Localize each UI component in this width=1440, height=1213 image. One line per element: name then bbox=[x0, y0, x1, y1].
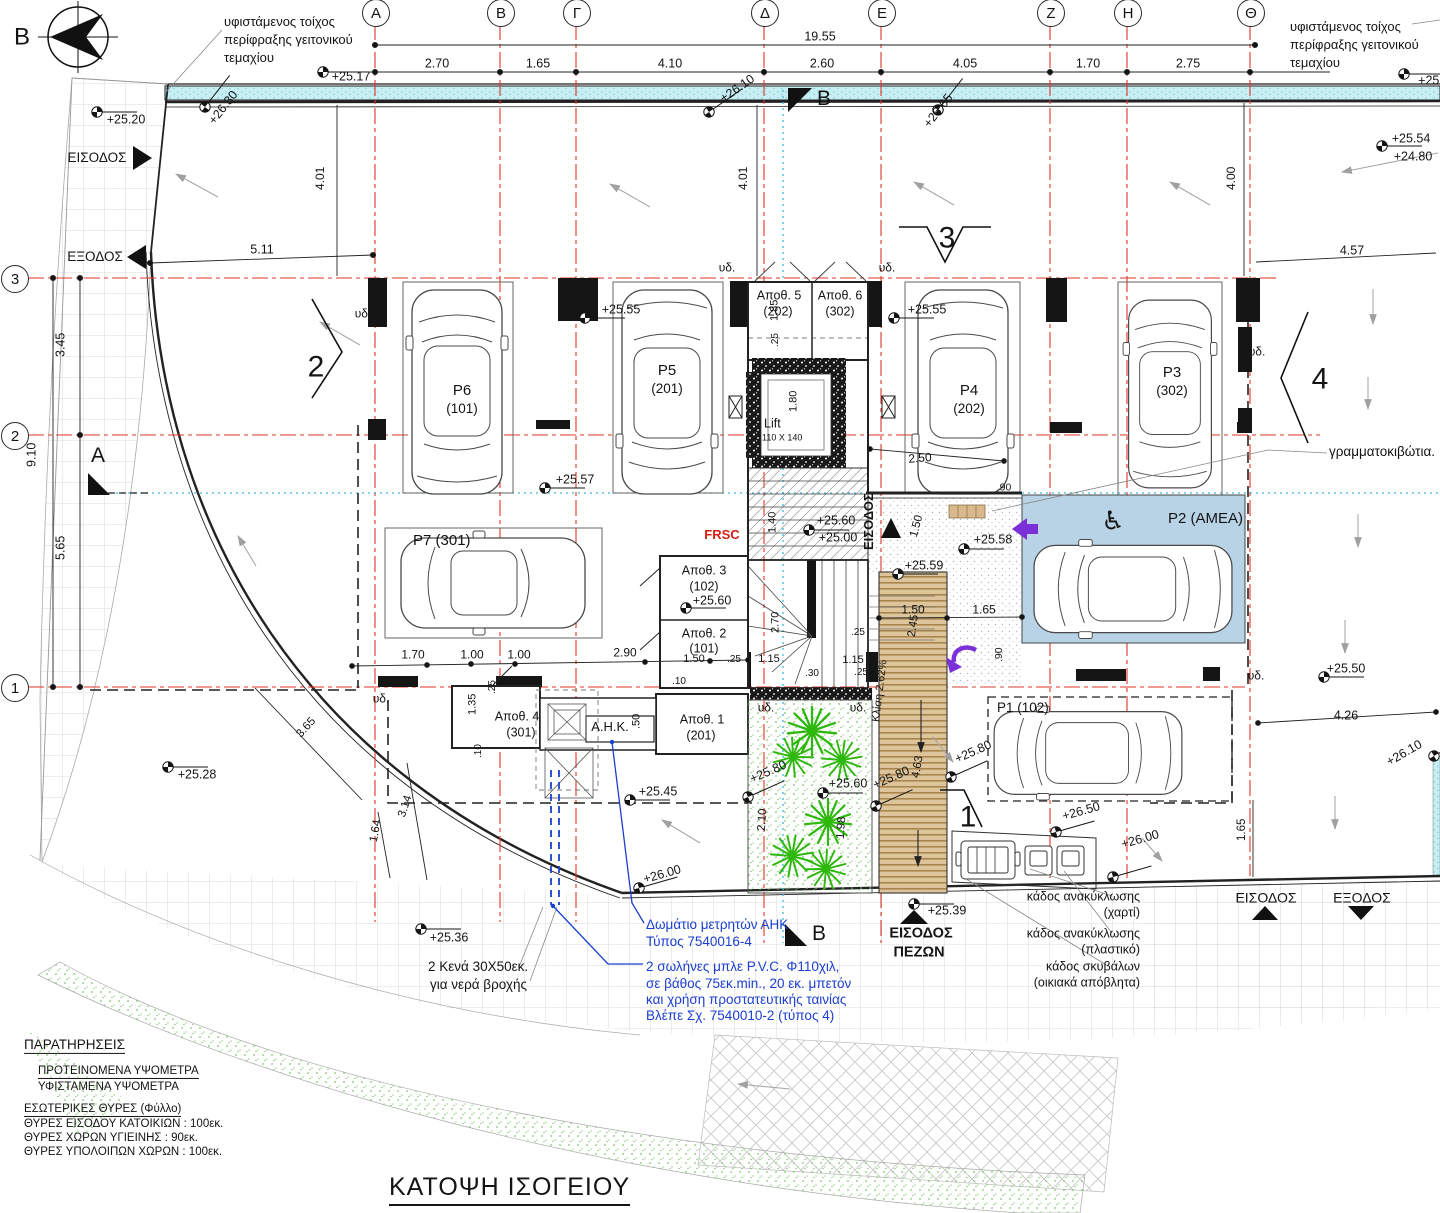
level-25-39: +25.39 bbox=[928, 904, 967, 917]
parking-p3-unit: (302) bbox=[1156, 384, 1188, 398]
storage-3-unit: (102) bbox=[689, 580, 718, 593]
dim-10-b: .10 bbox=[474, 744, 485, 758]
frsc-label: FRSC bbox=[704, 528, 739, 542]
section-b-top-label: B bbox=[817, 88, 831, 110]
dim-150-a: 1.50 bbox=[683, 654, 704, 666]
blue-note-pvc-1: 2 σωλήνες μπλε P.V.C. Φ110χιλ, bbox=[646, 960, 839, 974]
dim-135: 1.35 bbox=[468, 694, 480, 715]
level-25-17: +25.17 bbox=[332, 70, 371, 83]
bin-small-1 bbox=[1025, 846, 1052, 875]
floor-plan-page: { "title": {"text": "ΚΑΤΟΨΗ ΙΣΟΓΕΙΟΥ"}, … bbox=[0, 0, 1440, 1213]
storage-4-label: Αποθ. 4 bbox=[495, 710, 540, 723]
dim-gd: 4.10 bbox=[658, 57, 682, 70]
level-25-54: +25.54 bbox=[1392, 132, 1431, 145]
storage-6-label: Αποθ. 6 bbox=[818, 289, 863, 302]
lift-label: Lift bbox=[764, 417, 781, 430]
blue-note-pvc-2: σε βάθος 75εκ.min., 20 εκ. μπετόν bbox=[646, 977, 851, 991]
bin-waste-label-2: (οικιακά απόβλητα) bbox=[1034, 976, 1140, 989]
dim-100-b: 1.00 bbox=[507, 649, 530, 662]
dim-165-a: 1.65 bbox=[972, 604, 995, 617]
parking-p5-id: P5 bbox=[658, 363, 676, 379]
storage-6-unit: (302) bbox=[825, 305, 854, 318]
detail-mark-4-label: 4 bbox=[1312, 363, 1329, 395]
dim-401-b: 4.01 bbox=[737, 167, 750, 190]
ahk-label: Α.Η.Κ. bbox=[591, 720, 629, 734]
blue-note-pvc-4: Βλέπε Σχ. 7540010-2 (τύπος 4) bbox=[646, 1009, 834, 1023]
notes-doors-3: ΘΥΡΕΣ ΥΠΟΛΟΙΠΩΝ ΧΩΡΩΝ : 100εκ. bbox=[24, 1146, 222, 1158]
site-boundaries bbox=[40, 78, 1440, 898]
storage-1-label: Αποθ. 1 bbox=[680, 713, 725, 726]
level-25-55-b: +25.55 bbox=[908, 303, 947, 316]
dim-115-b: 1.15 bbox=[842, 655, 863, 667]
wall-note-right-2: περίφραξης γειτονικού bbox=[1290, 38, 1419, 52]
rain-note-2: για νερά βροχής bbox=[430, 978, 527, 992]
grid-row-1: 1 bbox=[1, 674, 29, 702]
parking-p3-id: P3 bbox=[1163, 365, 1181, 381]
yd-7: υδ. bbox=[850, 702, 867, 715]
dim-bg: 1.65 bbox=[526, 57, 550, 70]
storage-5-unit: (202) bbox=[763, 305, 792, 318]
yd-5: υδ. bbox=[373, 693, 390, 706]
wheelchair-icon: ♿ bbox=[1101, 507, 1124, 534]
blue-note-meter-1: Δωμάτιο μετρητών ΑΗΚ bbox=[646, 918, 788, 932]
dim-426: 4.26 bbox=[1334, 709, 1358, 722]
bin-paper-label-2: (χαρτί) bbox=[1104, 906, 1140, 919]
dim-210: 2.10 bbox=[756, 808, 770, 831]
dim-25-c: .25 bbox=[854, 668, 868, 679]
dim-401-a: 4.01 bbox=[314, 167, 327, 190]
blue-note-pvc-3: και χρήση προστατευτικής ταινίας bbox=[646, 993, 846, 1007]
storage-3-label: Αποθ. 3 bbox=[682, 564, 727, 577]
grid-row-3: 3 bbox=[1, 265, 29, 293]
dim-overall: 19.55 bbox=[804, 30, 835, 43]
bin-waste-label-1: κάδος σκυβάλων bbox=[1046, 960, 1140, 973]
parking-p7-label: P7 (301) bbox=[413, 533, 471, 549]
level-25-1-edge: +25.1 bbox=[1418, 74, 1440, 87]
dim-565: 5.65 bbox=[54, 536, 67, 560]
blue-note-meter-2: Τύπος 7540016-4 bbox=[646, 935, 752, 949]
dim-115-a: 1.15 bbox=[758, 654, 779, 666]
dim-25-a: .25 bbox=[771, 333, 782, 347]
level-25-58: +25.58 bbox=[974, 533, 1013, 546]
dim-270-st: 2.70 bbox=[771, 612, 783, 633]
level-24-80: +24.80 bbox=[1394, 150, 1433, 163]
section-a-label: A bbox=[91, 445, 105, 467]
grid-column-Γ: Γ bbox=[563, 0, 591, 27]
dim-25-d: .25 bbox=[727, 655, 741, 666]
north-label: B bbox=[14, 24, 30, 49]
dim-zh: 1.70 bbox=[1076, 57, 1100, 70]
lift-shaft bbox=[761, 374, 831, 456]
planting-bed bbox=[748, 700, 872, 895]
dim-165-b: 1.65 bbox=[1236, 819, 1248, 841]
drawing-title: ΚΑΤΟΨΗ ΙΣΟΓΕΙΟΥ bbox=[389, 1173, 630, 1206]
dim-ez: 4.05 bbox=[953, 57, 977, 70]
dim-250: 2.50 bbox=[908, 451, 932, 465]
waste-bins bbox=[952, 831, 1096, 889]
grid-row-2: 2 bbox=[1, 422, 29, 450]
dim-511: 5.11 bbox=[250, 243, 273, 256]
dim-180: 1.80 bbox=[789, 391, 801, 412]
bin-plastic-label-1: κάδος ανακύκλωσης bbox=[1027, 927, 1140, 940]
entrance-left-label: ΕΙΣΟΔΟΣ bbox=[68, 151, 127, 165]
level-25-50: +25.50 bbox=[1327, 662, 1366, 675]
dim-90-a: .90 bbox=[997, 482, 1012, 493]
level-26-10-br-icon bbox=[1427, 731, 1440, 763]
level-25-59: +25.59 bbox=[905, 559, 944, 572]
grid-column-Α: Α bbox=[362, 0, 390, 27]
exit-bottom-right-label: ΕΞΟΔΟΣ bbox=[1333, 891, 1391, 906]
entrance-bottom-right-label: ΕΙΣΟΔΟΣ bbox=[1235, 891, 1296, 906]
grid-column-Η: Η bbox=[1114, 0, 1142, 27]
pedestrian-entrance-label-1: ΕΙΣΟΔΟΣ bbox=[889, 926, 952, 941]
detail-mark-1-label: 1 bbox=[960, 801, 977, 833]
dim-290: 2.90 bbox=[613, 647, 636, 660]
storage-2-unit: (101) bbox=[689, 642, 718, 655]
dim-50: .50 bbox=[632, 714, 644, 729]
level-25-28: +25.28 bbox=[178, 768, 217, 781]
dim-457: 4.57 bbox=[1340, 244, 1364, 257]
wall-note-left-3: τεμαχίου bbox=[224, 51, 274, 65]
parking-p2-label: P2 (ΑΜΕΑ) bbox=[1168, 511, 1243, 527]
dim-345: 3.45 bbox=[54, 333, 67, 357]
level-25-60-storage: +25.60 bbox=[693, 594, 732, 607]
lift-size-label: 110 X 140 bbox=[762, 433, 802, 442]
parking-p5-unit: (201) bbox=[651, 382, 683, 396]
notes-heading: ΠΑΡΑΤΗΡΗΣΕΙΣ bbox=[24, 1038, 125, 1054]
wall-note-left-2: περίφραξης γειτονικού bbox=[224, 33, 353, 47]
grid-column-Δ: Δ bbox=[751, 0, 779, 27]
detail-mark-2-label: 2 bbox=[308, 351, 325, 383]
exit-left-label: ΕΞΟΔΟΣ bbox=[67, 250, 123, 264]
yd-8: υδ. bbox=[1248, 670, 1265, 683]
notes-doors-heading: ΕΣΩΤΕΡΙΚΕΣ ΘΥΡΕΣ (Φύλλο) bbox=[24, 1103, 181, 1117]
detail-mark-3-label: 3 bbox=[939, 222, 956, 254]
bin-small-2 bbox=[1057, 846, 1084, 875]
notes-existing-levels: ΥΦΙΣΤΑΜΕΝΑ ΥΨΟΜΕΤΡΑ bbox=[38, 1081, 179, 1093]
level-25-20: +25.20 bbox=[107, 113, 146, 126]
dim-10-a: .10 bbox=[672, 677, 686, 688]
notes-proposed-levels: ΠΡΟΤΕΙΝΟΜΕΝΑ ΥΨΟΜΕΤΡΑ bbox=[38, 1065, 199, 1079]
storage-5-label: Αποθ. 5 bbox=[757, 289, 802, 302]
section-b-bottom-label: B bbox=[812, 923, 826, 945]
dim-910: 9.10 bbox=[25, 443, 38, 467]
grid-column-Ε: Ε bbox=[868, 0, 896, 27]
level-25-36: +25.36 bbox=[430, 931, 469, 944]
dim-25-b: .25 bbox=[851, 628, 865, 639]
level-25-45: +25.45 bbox=[639, 785, 678, 798]
parking-p6-unit: (101) bbox=[446, 402, 478, 416]
grid-column-Ζ: Ζ bbox=[1037, 0, 1065, 27]
dim-170: 1.70 bbox=[401, 649, 424, 662]
dim-90-b: .90 bbox=[994, 647, 1005, 662]
storage-1-unit: (201) bbox=[686, 729, 715, 742]
bin-paper-label-1: κάδος ανακύκλωσης bbox=[1027, 890, 1140, 903]
grid-column-Β: Β bbox=[487, 0, 515, 27]
wall-note-right-1: υφιστάμενος τοίχος bbox=[1290, 20, 1401, 34]
yd-4: υδ. bbox=[1249, 346, 1266, 359]
car-p1 bbox=[994, 706, 1182, 800]
detail-mark-4 bbox=[1281, 312, 1308, 443]
level-25-60-stair: +25.60 bbox=[817, 514, 856, 527]
yd-2: υδ. bbox=[719, 262, 736, 275]
level-25-57: +25.57 bbox=[556, 473, 595, 486]
level-25-55-a: +25.55 bbox=[602, 303, 641, 316]
parking-p1-label: P1 (102) bbox=[997, 701, 1049, 715]
dim-198: 1.98 bbox=[835, 816, 849, 839]
dim-100-a: 1.00 bbox=[460, 649, 483, 662]
bin-plastic-label-2: (πλαστικό) bbox=[1081, 943, 1140, 956]
yd-3: υδ. bbox=[879, 262, 896, 275]
dim-400: 4.00 bbox=[1225, 167, 1238, 190]
dim-ab: 2.70 bbox=[425, 57, 449, 70]
yd-6: υδ. bbox=[758, 702, 775, 715]
car-p2 bbox=[1034, 540, 1232, 639]
storage-2-label: Αποθ. 2 bbox=[682, 627, 727, 640]
entrance-door-label: ΕΙΣΟΔΟΣ bbox=[862, 493, 876, 550]
notes-doors-1: ΘΥΡΕΣ ΕΙΣΟΔΟΥ ΚΑΤΟΙΚΙΩΝ : 100εκ. bbox=[24, 1118, 223, 1130]
level-25-60-court: +25.60 bbox=[829, 777, 868, 790]
dim-30: .30 bbox=[805, 669, 819, 680]
north-symbol bbox=[38, 1, 118, 73]
dim-140: 1.40 bbox=[768, 512, 780, 533]
storage-4-unit: (301) bbox=[506, 726, 535, 739]
wall-note-right-3: τεμαχίου bbox=[1290, 56, 1340, 70]
parking-p4-unit: (202) bbox=[953, 402, 985, 416]
wall-note-left-1: υφιστάμενος τοίχος bbox=[224, 15, 335, 29]
dim-de: 2.60 bbox=[810, 57, 834, 70]
level-26-00-a-icon bbox=[1107, 861, 1153, 883]
level-25-00-stair: +25.00 bbox=[819, 531, 858, 544]
parking-p4-id: P4 bbox=[960, 383, 978, 399]
mailboxes-label: γραμματοκιβώτια. bbox=[1329, 445, 1435, 459]
dim-25-e: .25 bbox=[488, 680, 499, 694]
parking-p6-id: P6 bbox=[453, 383, 471, 399]
grid-column-Θ: Θ bbox=[1237, 0, 1265, 27]
notes-doors-2: ΘΥΡΕΣ ΧΩΡΩΝ ΥΓΙΕΙΝΗΣ : 90εκ. bbox=[24, 1132, 198, 1144]
pedestrian-entrance-label-2: ΠΕΖΩΝ bbox=[893, 945, 944, 960]
dim-hth: 2.75 bbox=[1176, 57, 1200, 70]
yd-1: υδ. bbox=[355, 308, 372, 321]
rain-note-1: 2 Κενά 30Χ50εκ. bbox=[428, 960, 528, 974]
